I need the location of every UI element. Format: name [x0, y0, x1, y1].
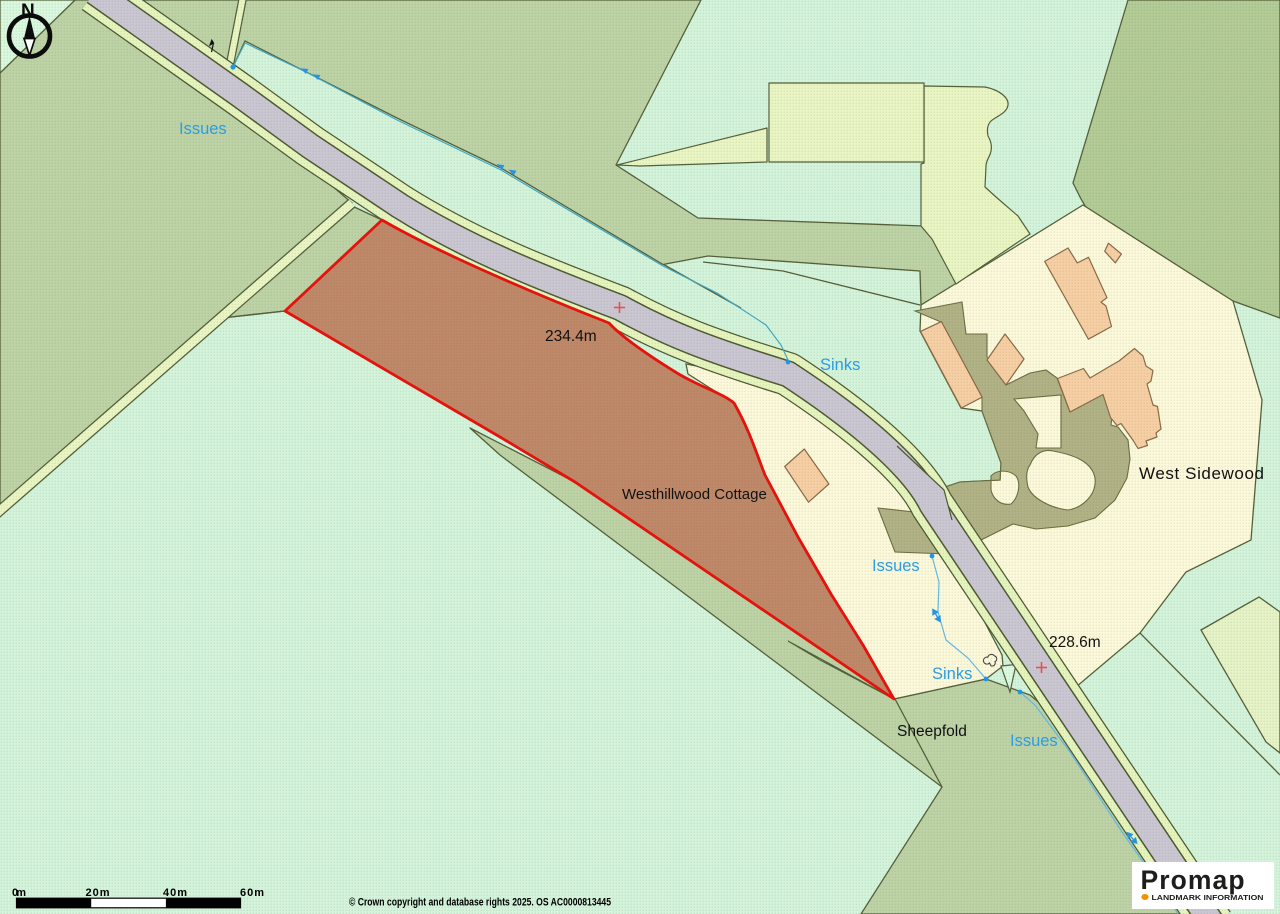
svg-text:Issues: Issues: [179, 120, 227, 138]
svg-text:Promap: Promap: [1141, 865, 1245, 895]
svg-text:Westhillwood Cottage: Westhillwood Cottage: [622, 486, 767, 503]
svg-text:40m: 40m: [163, 887, 187, 899]
svg-text:Issues: Issues: [872, 557, 920, 575]
svg-text:Sinks: Sinks: [932, 665, 972, 683]
svg-text:West Sidewood: West Sidewood: [1139, 464, 1264, 483]
svg-text:N: N: [21, 1, 35, 22]
svg-text:Issues: Issues: [1010, 732, 1058, 750]
svg-text:234.4m: 234.4m: [545, 328, 597, 345]
svg-text:Sheepfold: Sheepfold: [897, 723, 967, 740]
svg-text:20m: 20m: [86, 887, 110, 899]
svg-text:0m: 0m: [12, 887, 26, 899]
svg-text:228.6m: 228.6m: [1049, 634, 1101, 651]
svg-text:Sinks: Sinks: [820, 356, 860, 374]
svg-text:60m: 60m: [240, 887, 264, 899]
svg-text:LANDMARK INFORMATION: LANDMARK INFORMATION: [1152, 893, 1264, 902]
svg-text:© Crown copyright and database: © Crown copyright and database rights 20…: [349, 897, 611, 909]
